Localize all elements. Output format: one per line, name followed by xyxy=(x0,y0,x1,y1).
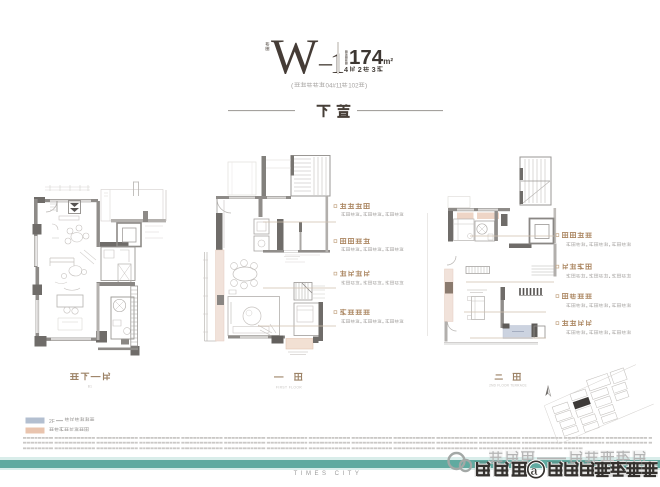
svg-text:a: a xyxy=(531,464,539,478)
